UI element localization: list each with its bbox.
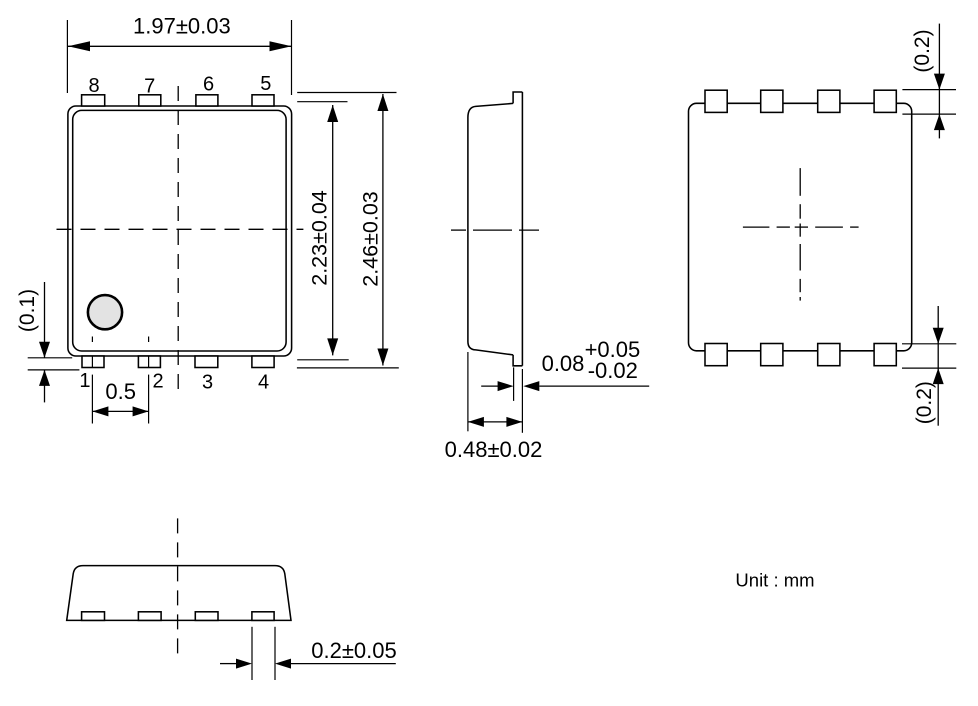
svg-text:5: 5 [260, 73, 271, 95]
svg-text:3: 3 [202, 372, 213, 394]
svg-text:7: 7 [144, 76, 155, 98]
svg-text:1: 1 [79, 370, 90, 392]
svg-text:2.23±0.04: 2.23±0.04 [308, 190, 332, 286]
svg-text:0.48±0.02: 0.48±0.02 [445, 437, 543, 462]
svg-text:(0.1): (0.1) [16, 289, 39, 332]
svg-text:1.97±0.03: 1.97±0.03 [133, 14, 231, 39]
svg-text:8: 8 [88, 75, 99, 97]
svg-text:(0.2): (0.2) [913, 381, 936, 424]
svg-text:0.2±0.05: 0.2±0.05 [311, 638, 396, 663]
svg-text:(0.2): (0.2) [911, 29, 934, 72]
svg-text:0.5: 0.5 [105, 379, 136, 404]
svg-text:4: 4 [258, 372, 269, 394]
svg-text:2.46±0.03: 2.46±0.03 [359, 191, 383, 287]
svg-text:0.08: 0.08 [542, 351, 585, 376]
svg-text:2: 2 [152, 371, 163, 393]
svg-text:Unit : mm: Unit : mm [735, 570, 814, 591]
svg-text:-0.02: -0.02 [588, 358, 638, 383]
svg-text:6: 6 [203, 74, 214, 96]
